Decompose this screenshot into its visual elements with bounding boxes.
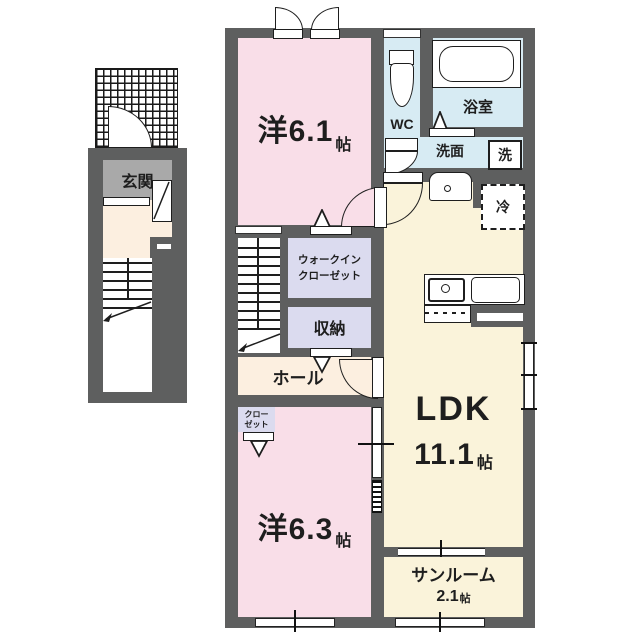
storage-label: 収納 [288, 310, 371, 344]
western2-label: 洋6.3帖 [238, 498, 371, 554]
western1-unit: 帖 [335, 131, 351, 158]
western2-sliding-door-tick [358, 443, 394, 445]
sunroom-size-value: 2.1 [436, 588, 458, 606]
kitchen-counter-opening [477, 313, 523, 321]
wic-line2: クローゼット [298, 268, 361, 284]
floor-plan: 玄関 WC 浴室 洗面 洗 [0, 0, 640, 640]
stair-tread [238, 283, 280, 285]
stair-tread [238, 274, 280, 276]
kitchen-cabinet-dash-line [425, 312, 470, 314]
ldk-size: 11.1帖 [384, 434, 523, 476]
sunroom-bottom-window-tick [439, 612, 441, 632]
washroom-door-leaf-icon [383, 172, 423, 183]
ldk-window [524, 343, 534, 410]
closet-door-triangle-icon [249, 440, 269, 458]
vanity-drain-icon [444, 185, 451, 192]
double-door-left-leaf-icon [273, 29, 303, 39]
stair-tread [238, 247, 280, 249]
ldk-window-tick [521, 342, 537, 344]
western1-name: 洋6.1 [258, 106, 334, 150]
stair-tread [238, 256, 280, 258]
western2-wall-hatch [372, 480, 382, 513]
stair-tread [238, 310, 280, 312]
ldk-name: LDK [384, 388, 523, 430]
wc-label: WC [384, 112, 420, 136]
stair-tread [238, 292, 280, 294]
closet-label: クロー ゼット [238, 408, 275, 431]
kitchen-stove-icon [471, 277, 520, 303]
sunroom-top-window-tick [440, 540, 442, 557]
double-door-right-swing-icon [311, 7, 339, 30]
double-door-right-leaf-icon [310, 29, 340, 39]
stair-tread [238, 265, 280, 267]
main-stair-arrow-icon [238, 330, 282, 353]
washer-box: 洗 [488, 140, 522, 170]
kitchen-faucet-icon [441, 284, 450, 293]
stair-tread [238, 319, 280, 321]
wic-door-sill [310, 226, 352, 235]
western1-label: 洋6.1帖 [238, 98, 371, 158]
western2-bottom-window-tick [294, 610, 296, 632]
stair-divider-line [127, 258, 129, 300]
washroom-label: 洗面 [420, 140, 480, 162]
bathtub-icon [439, 46, 514, 82]
hall-door-leaf-icon [372, 357, 384, 398]
closet-line1: クロー [245, 410, 269, 420]
bath-door-sill [429, 128, 475, 137]
ldk-window-tick [521, 374, 537, 376]
kitchen-cabinet [424, 305, 471, 323]
ldk-room [384, 182, 523, 547]
fridge-space: 冷 [481, 184, 525, 230]
stair-divider-line [257, 238, 259, 328]
ldk-size-unit: 帖 [477, 449, 493, 476]
ldk-size-value: 11.1 [414, 438, 475, 472]
top-wall-window [383, 29, 421, 38]
wic-label: ウォークイン クローゼット [288, 244, 371, 292]
stair-landing-opening [235, 226, 282, 234]
stair-direction-arrow-icon [103, 298, 153, 324]
genkan-step-edge [103, 197, 150, 206]
hall-label: ホール [243, 362, 353, 390]
sunroom-size: 2.1帖 [384, 586, 523, 608]
wall-vent-mark [157, 244, 171, 249]
wc-door-leaf-icon [385, 138, 418, 151]
western2-unit: 帖 [335, 527, 351, 554]
ldk-window-tick [521, 408, 537, 410]
wic-line1: ウォークイン [298, 252, 361, 268]
double-door-left-swing-icon [275, 7, 303, 30]
western2-name: 洋6.3 [258, 504, 334, 548]
western1-door-leaf-icon [374, 187, 387, 228]
shoe-cabinet-icon [152, 180, 172, 222]
genkan-hall-lower [103, 237, 150, 258]
sunroom-size-unit: 帖 [460, 590, 471, 608]
closet-line2: ゼット [245, 420, 269, 430]
stair-tread [238, 301, 280, 303]
sunroom-name: サンルーム [384, 561, 523, 585]
